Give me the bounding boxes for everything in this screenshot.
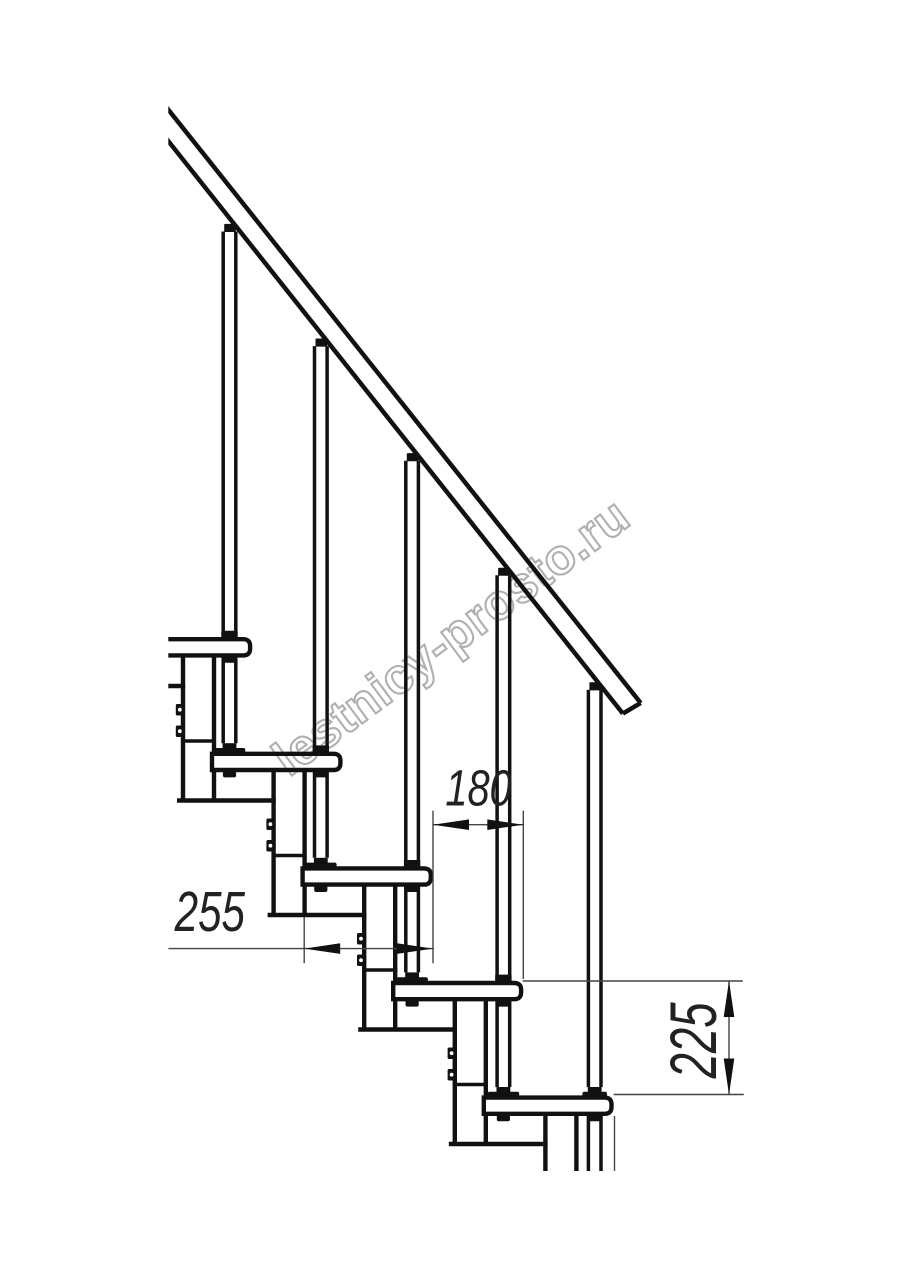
- svg-text:180: 180: [445, 760, 512, 817]
- svg-text:255: 255: [174, 880, 245, 944]
- svg-text:225: 225: [658, 1002, 731, 1079]
